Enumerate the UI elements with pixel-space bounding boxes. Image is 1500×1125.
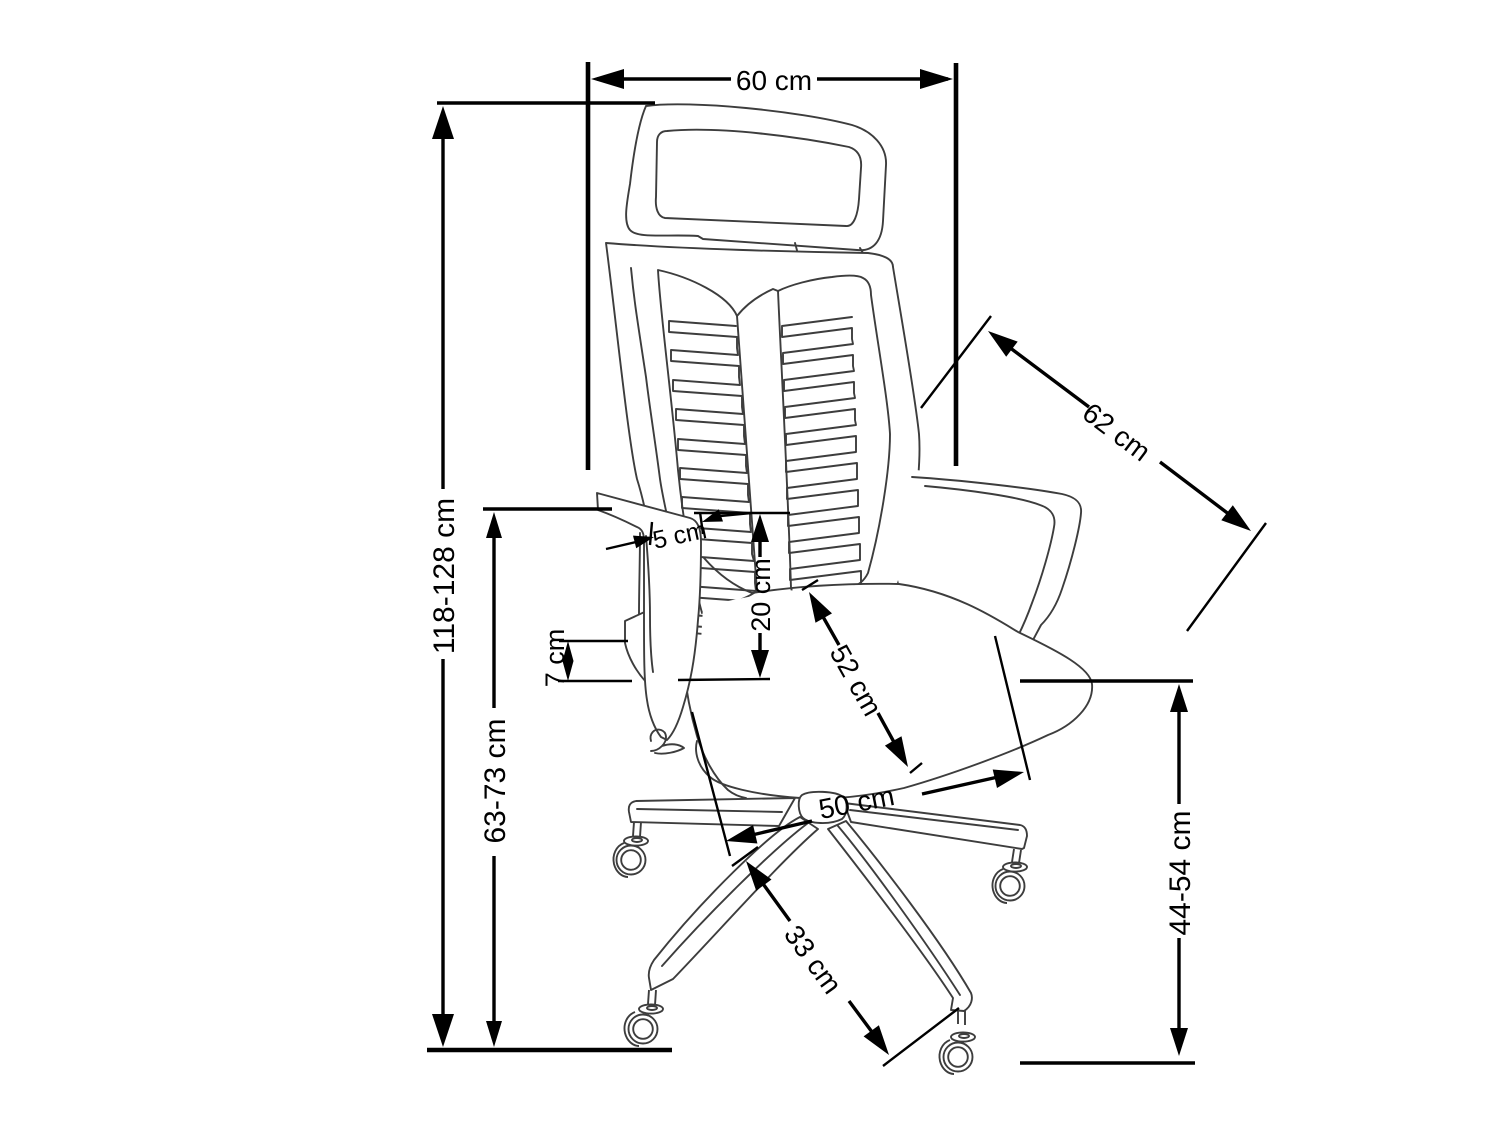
svg-text:118-128 cm: 118-128 cm [428, 498, 461, 654]
svg-text:20 cm: 20 cm [746, 558, 776, 632]
svg-text:63-73 cm: 63-73 cm [479, 718, 512, 843]
svg-text:60 cm: 60 cm [736, 65, 812, 96]
svg-text:44-54 cm: 44-54 cm [1164, 810, 1197, 935]
svg-text:7 cm: 7 cm [540, 629, 570, 688]
